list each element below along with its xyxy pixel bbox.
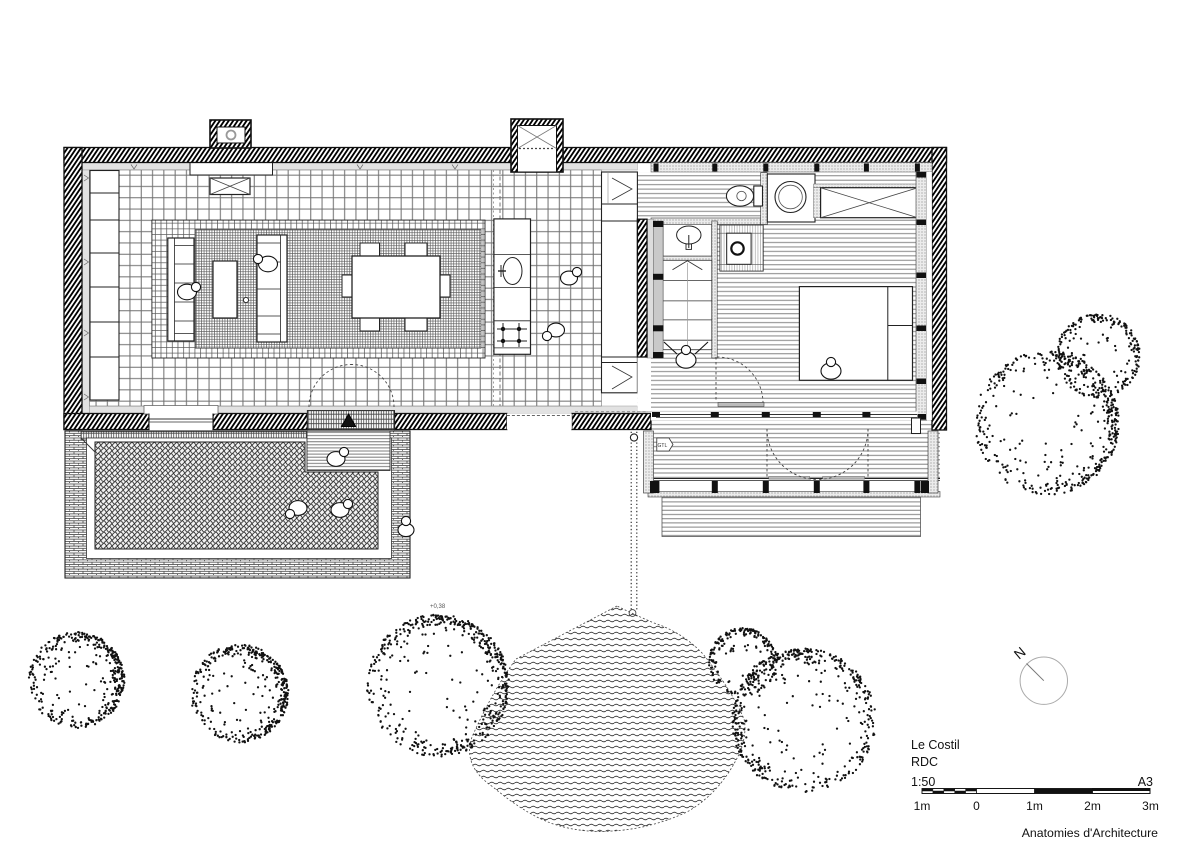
svg-text:GTL: GTL (658, 443, 668, 449)
svg-text:3m: 3m (1142, 799, 1159, 813)
svg-text:2m: 2m (1084, 799, 1101, 813)
svg-text:A3: A3 (1138, 775, 1153, 789)
svg-text:1:50: 1:50 (911, 775, 935, 789)
svg-text:1m: 1m (914, 799, 931, 813)
svg-text:0: 0 (973, 799, 980, 813)
svg-text:RDC: RDC (911, 755, 938, 769)
svg-text:Le Costil: Le Costil (911, 738, 960, 752)
svg-text:+0,38: +0,38 (430, 604, 446, 610)
svg-text:Anatomies d'Architecture: Anatomies d'Architecture (1022, 826, 1158, 840)
svg-text:1m: 1m (1026, 799, 1043, 813)
